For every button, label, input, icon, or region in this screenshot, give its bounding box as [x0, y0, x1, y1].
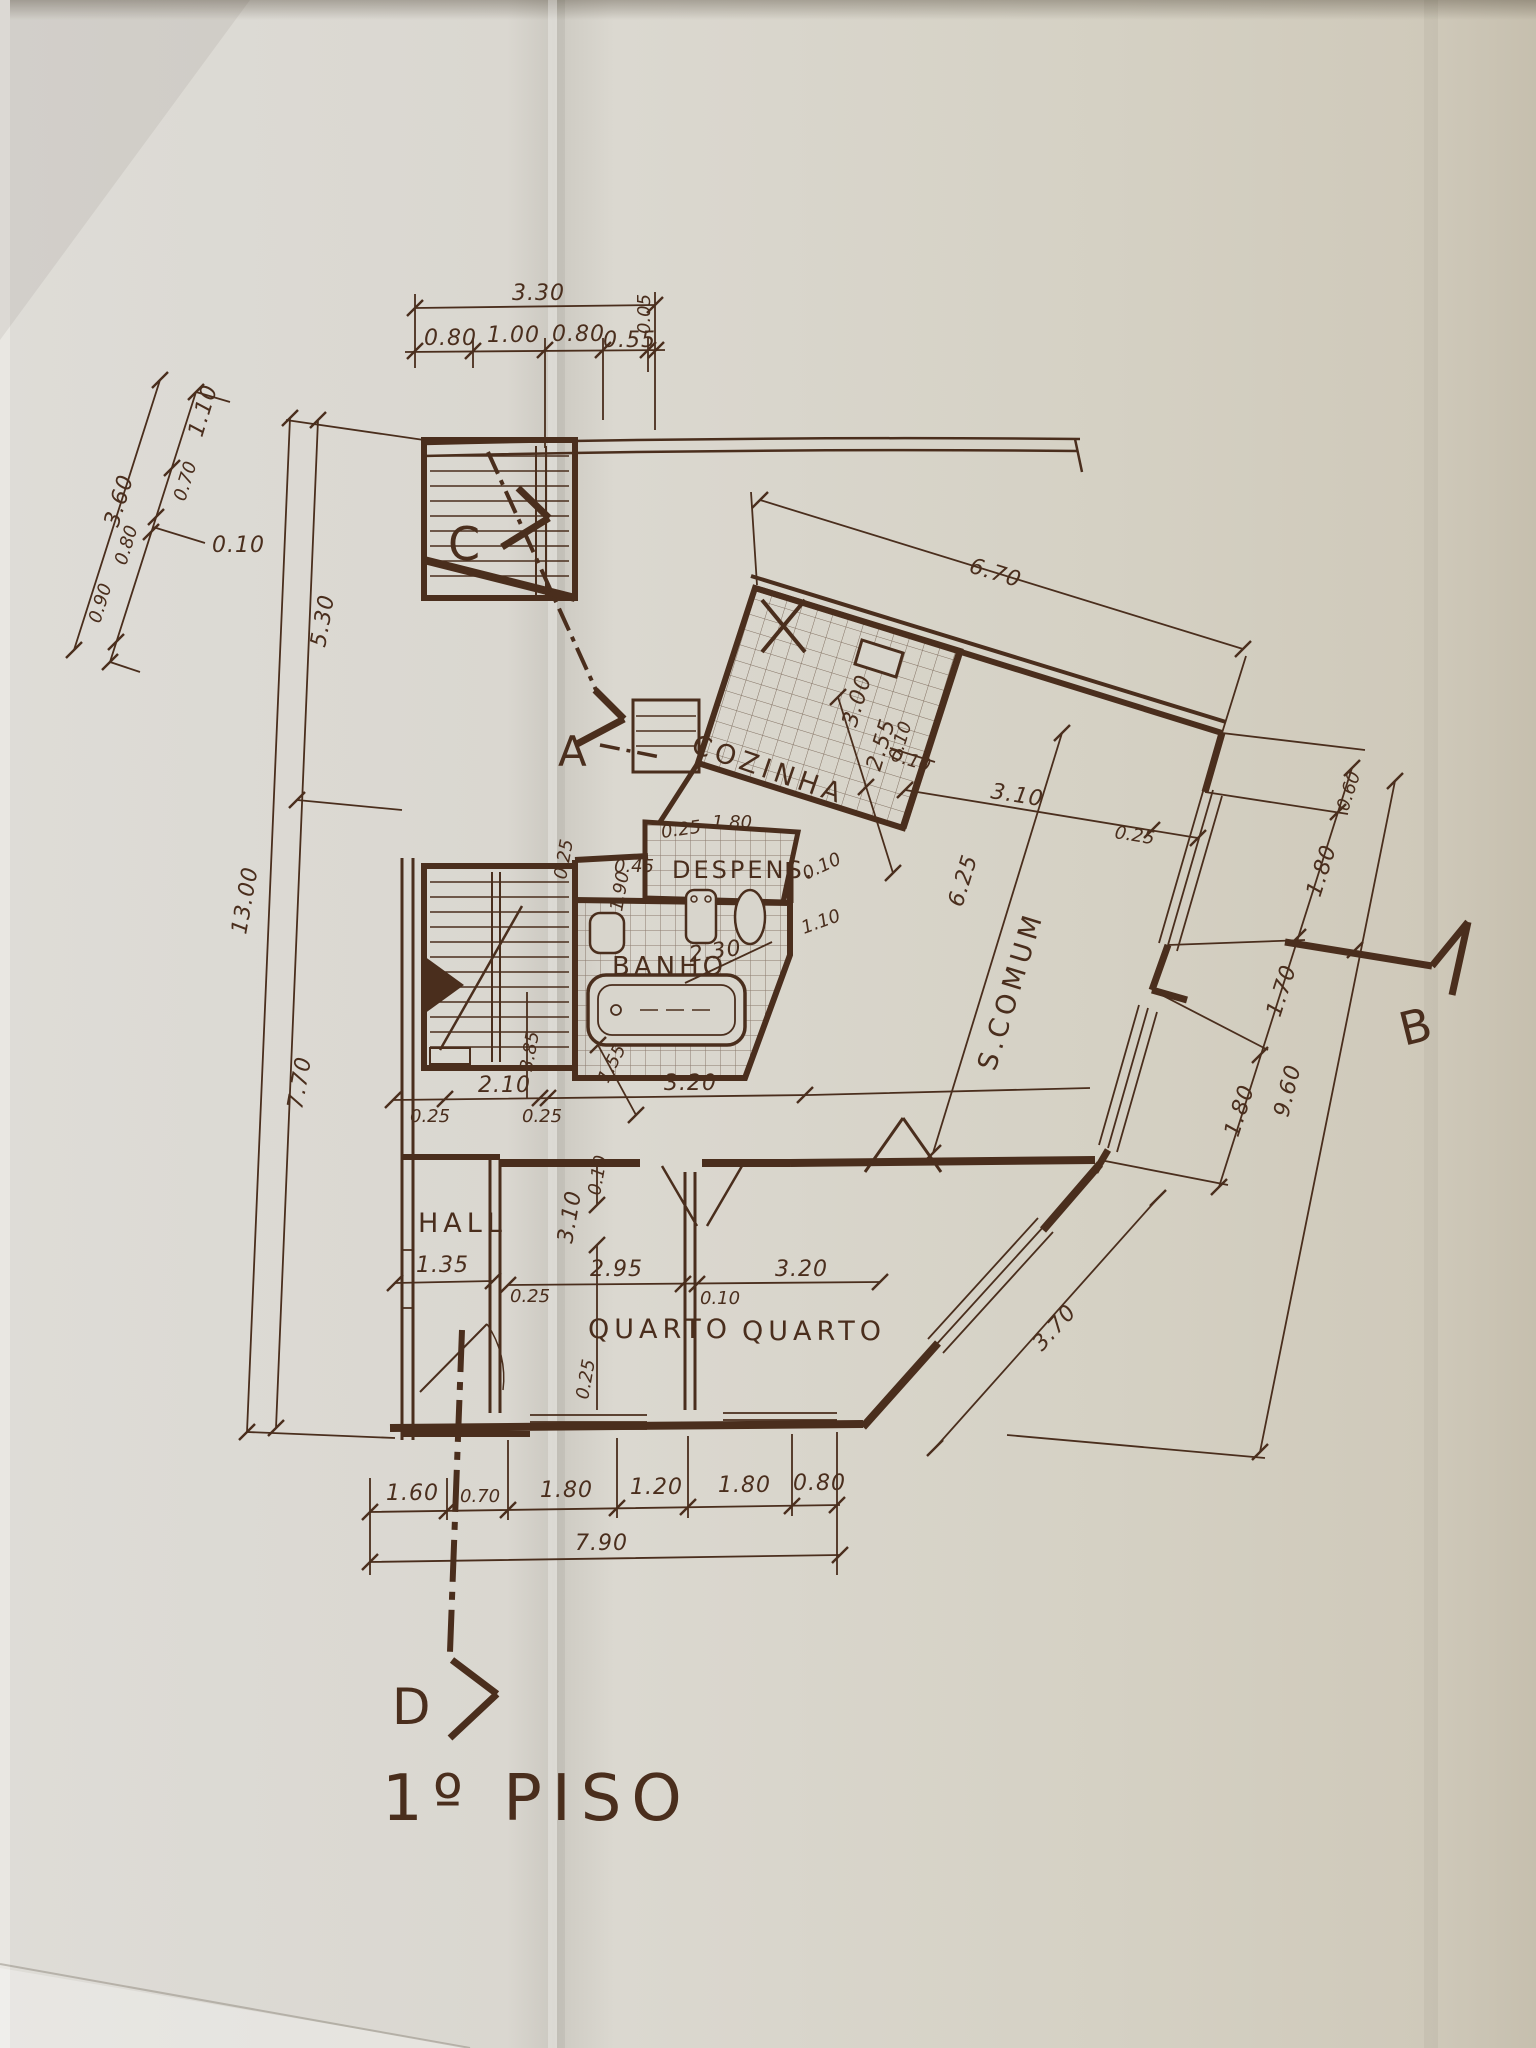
page-title: 1º PISO: [382, 1762, 692, 1836]
section-label-d: D: [392, 1678, 433, 1736]
dim-bed-295: 2.95: [590, 1257, 643, 1282]
dim-bed-025a: 0.25: [510, 1286, 550, 1307]
dim-mid-210: 2.10: [478, 1073, 531, 1098]
dim-bed-320: 3.20: [775, 1257, 828, 1282]
section-label-c: C: [448, 517, 482, 571]
section-label-a: A: [558, 727, 589, 776]
room-label-quarto2: QUARTO: [742, 1316, 886, 1347]
dim-bot-160: 1.60: [386, 1481, 439, 1506]
dim-top-total: 3.30: [512, 281, 565, 306]
dim-bot-080: 0.80: [793, 1471, 846, 1496]
floor-plan-drawing: 3.30 0.80 1.00 0.80 0.55 0.05 3.60 1.10 …: [0, 0, 1536, 2048]
dim-top-5: 0.05: [634, 294, 655, 334]
dim-mid-025b: 0.25: [522, 1106, 562, 1127]
dim-top-2: 1.00: [487, 323, 540, 348]
dim-bot-180b: 1.80: [718, 1473, 771, 1498]
room-label-despensa: DESPENS.: [672, 856, 815, 884]
room-label-quarto1: QUARTO: [588, 1314, 732, 1345]
dim-bot-total: 7.90: [575, 1531, 628, 1556]
dim-mid-025a: 0.25: [410, 1106, 450, 1127]
floor-plan-sheet: 3.30 0.80 1.00 0.80 0.55 0.05 3.60 1.10 …: [0, 0, 1536, 2048]
room-label-hall: HALL: [418, 1208, 507, 1239]
dim-bot-180a: 1.80: [540, 1478, 593, 1503]
dim-bot-120: 1.20: [630, 1475, 683, 1500]
dim-mid-320: 3.20: [664, 1071, 717, 1096]
paper-background: [0, 0, 1536, 2048]
dim-hall-135: 1.35: [416, 1253, 469, 1278]
dim-top-1: 0.80: [424, 326, 477, 351]
dim-ul-offset: 0.10: [212, 533, 265, 558]
dim-top-3: 0.80: [552, 322, 605, 347]
dim-kit-180: 1.80: [712, 812, 752, 833]
dim-bed-wall-010: 0.10: [700, 1288, 740, 1309]
bidet: [590, 913, 624, 953]
dim-bot-070: 0.70: [460, 1486, 500, 1507]
